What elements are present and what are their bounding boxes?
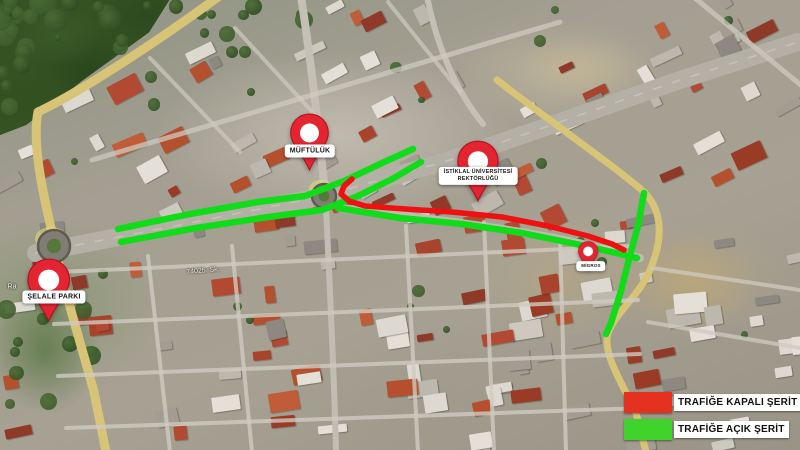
- road: [648, 322, 800, 348]
- closed-lane-swatch: [624, 392, 672, 413]
- satellite-map: 74025. Sk.Ra MÜFTÜLÜKİSTİKLAL ÜNİVERSİTE…: [0, 0, 800, 450]
- road: [58, 354, 640, 376]
- pin-label-muftuluk: MÜFTÜLÜK: [285, 144, 335, 157]
- pin-label-line: MİGROS: [581, 263, 600, 269]
- road: [326, 208, 336, 450]
- road: [58, 246, 632, 272]
- open-lane-swatch: [624, 419, 672, 440]
- roundabout-center: [47, 239, 61, 253]
- road: [54, 300, 638, 324]
- map-overlay-svg: [0, 0, 800, 450]
- road: [148, 256, 170, 450]
- legend-item-closed-lane: TRAFİĞE KAPALI ŞERİT: [624, 392, 800, 413]
- road: [232, 246, 252, 450]
- legend-item-open-lane: TRAFİĞE AÇIK ŞERİT: [624, 419, 800, 440]
- pin-label-line: REKTÖRLÜĞÜ: [444, 176, 513, 183]
- road: [66, 408, 642, 428]
- open-lane-label: TRAFİĞE AÇIK ŞERİT: [674, 421, 789, 438]
- pin-label-selale-parki: ŞELALE PARKI: [22, 290, 85, 303]
- pin-label-migros: MİGROS: [576, 261, 605, 271]
- street-name-label: Ra: [8, 284, 17, 291]
- legend: TRAFİĞE KAPALI ŞERİT TRAFİĞE AÇIK ŞERİT: [624, 392, 800, 440]
- pin-label-line: MÜFTÜLÜK: [290, 146, 330, 155]
- pin-label-line: ŞELALE PARKI: [27, 292, 80, 301]
- pin-hole: [39, 270, 60, 291]
- road: [652, 268, 800, 290]
- road: [388, 2, 460, 92]
- map-pin-muftuluk: [288, 113, 331, 171]
- pin-hole: [300, 124, 319, 143]
- closed-lane-label: TRAFİĞE KAPALI ŞERİT: [674, 394, 800, 411]
- road: [560, 240, 566, 450]
- road: [484, 222, 494, 450]
- pin-hole: [583, 246, 593, 256]
- pin-label-istiklal-universitesi-rektorlugu: İSTİKLAL ÜNİVERSİTESİREKTÖRLÜĞÜ: [439, 167, 518, 185]
- route-line-open: [606, 193, 644, 334]
